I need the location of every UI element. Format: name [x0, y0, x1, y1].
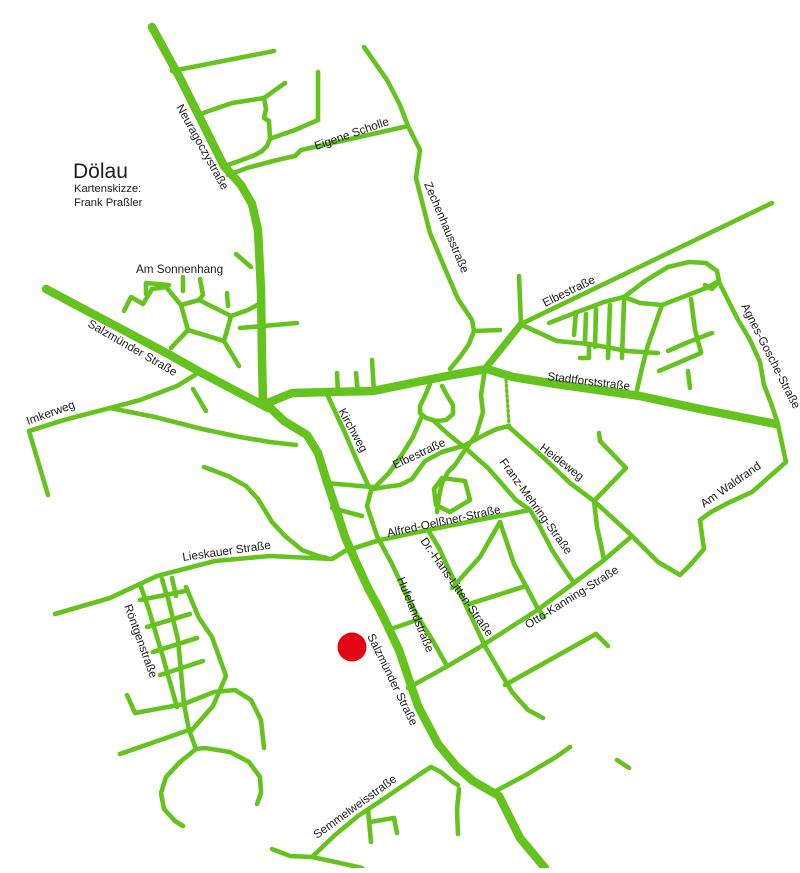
svg-text:Frank Praßler: Frank Praßler: [74, 197, 143, 209]
svg-text:Dölau: Dölau: [73, 160, 128, 183]
svg-text:Kartenskizze:: Kartenskizze:: [74, 183, 141, 195]
svg-text:Am Sonnenhang: Am Sonnenhang: [136, 263, 223, 276]
